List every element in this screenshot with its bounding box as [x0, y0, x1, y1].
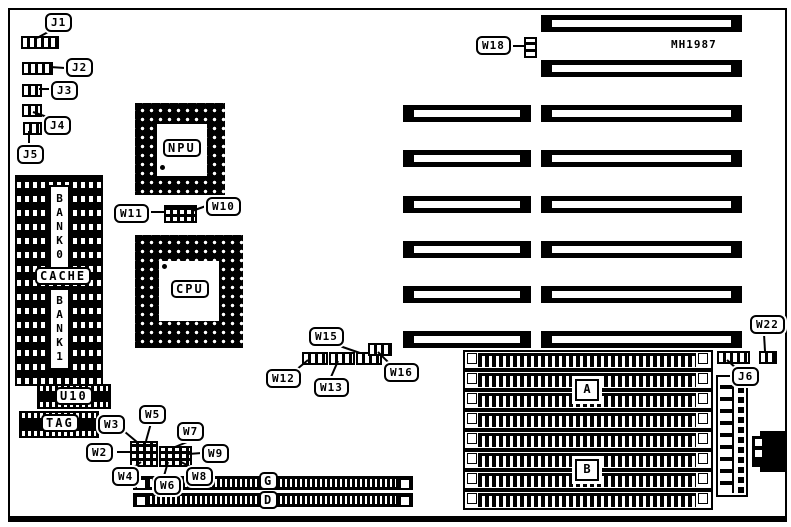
motherboard-diagram: MH1987 BANK0 CACHE BANK1 U10 TAG NPU CPU [0, 0, 791, 527]
callout-w15: W15 [309, 327, 344, 346]
callout-w5: W5 [139, 405, 166, 424]
tag-label: TAG [41, 414, 79, 432]
cache-label: CACHE [35, 267, 91, 285]
isa-slot [403, 196, 531, 213]
jumper-strip-w18 [524, 37, 537, 58]
callout-j3: J3 [51, 81, 78, 100]
isa-slot [403, 286, 531, 303]
jumper-block-w6-w9 [159, 446, 192, 467]
part-number: MH1987 [671, 38, 717, 51]
callout-w8: W8 [186, 467, 213, 486]
callout-w7: W7 [177, 422, 204, 441]
simm-socket [463, 490, 713, 510]
power-header-pins-right [738, 379, 744, 493]
jumper-strip-w13 [329, 352, 355, 365]
simm-bank-b-label: B [575, 459, 599, 481]
isa-slot [541, 331, 742, 348]
simm-socket [463, 350, 713, 370]
isa-slot [541, 241, 742, 258]
u10-label: U10 [55, 387, 93, 405]
callout-w9: W9 [202, 444, 229, 463]
jumper-block-w10-w11 [164, 205, 197, 223]
slot-g-label: G [259, 472, 278, 490]
callout-w12: W12 [266, 369, 301, 388]
callout-w11: W11 [114, 204, 149, 223]
jumper-strip-j1 [21, 36, 59, 49]
isa-slot [541, 150, 742, 167]
power-header [716, 375, 748, 497]
isa-slot [403, 150, 531, 167]
callout-w6: W6 [154, 476, 181, 495]
slot-d-label: D [259, 491, 278, 509]
isa-slot [541, 105, 742, 122]
bank1-text: BANK1 [53, 294, 66, 364]
isa-slot [541, 286, 742, 303]
jumper-strip-j2 [22, 62, 53, 75]
callout-j2: J2 [66, 58, 93, 77]
cpu-pin1-dot [162, 264, 167, 269]
keyboard-connector-pin [755, 450, 762, 457]
keyboard-connector [760, 431, 787, 472]
isa-slot [403, 241, 531, 258]
cpu-label: CPU [171, 280, 209, 298]
callout-w10: W10 [206, 197, 241, 216]
callout-j5: J5 [17, 145, 44, 164]
jumper-strip-w22 [759, 351, 777, 364]
jumper-strip-w12 [302, 352, 328, 365]
bank1-label: BANK1 [49, 288, 70, 370]
keyboard-connector-pin [755, 439, 762, 446]
callout-w4: W4 [112, 467, 139, 486]
callout-j6: J6 [732, 367, 759, 386]
slot-g-clip-right [400, 479, 410, 489]
jumper-block-w2-w5 [130, 441, 158, 467]
callout-j1: J1 [45, 13, 72, 32]
npu-label: NPU [163, 139, 201, 157]
callout-w13: W13 [314, 378, 349, 397]
callout-w2: W2 [86, 443, 113, 462]
simm-bank-a-label: A [575, 379, 599, 401]
callout-w18: W18 [476, 36, 511, 55]
bank0-label: BANK0 [49, 185, 70, 269]
power-header-pins-left [720, 379, 734, 493]
isa-slot [541, 196, 742, 213]
callout-w22: W22 [750, 315, 785, 334]
callout-w3: W3 [98, 415, 125, 434]
jumper-strip-w16 [368, 343, 392, 356]
npu-pin1-dot [160, 165, 165, 170]
jumper-strip-j4 [22, 104, 42, 117]
slot-d-clip-left [136, 496, 146, 506]
isa-slot [541, 15, 742, 32]
isa-slot [403, 105, 531, 122]
callout-j4: J4 [44, 116, 71, 135]
isa-slot [541, 60, 742, 77]
callout-w16: W16 [384, 363, 419, 382]
isa-slot [403, 331, 531, 348]
slot-d-clip-right [400, 496, 410, 506]
bank0-text: BANK0 [53, 192, 66, 262]
simm-socket [463, 430, 713, 450]
jumper-strip-j3 [22, 84, 42, 97]
jumper-strip-j5 [23, 122, 42, 135]
jumper-strip-j6 [717, 351, 750, 364]
simm-socket [463, 410, 713, 430]
